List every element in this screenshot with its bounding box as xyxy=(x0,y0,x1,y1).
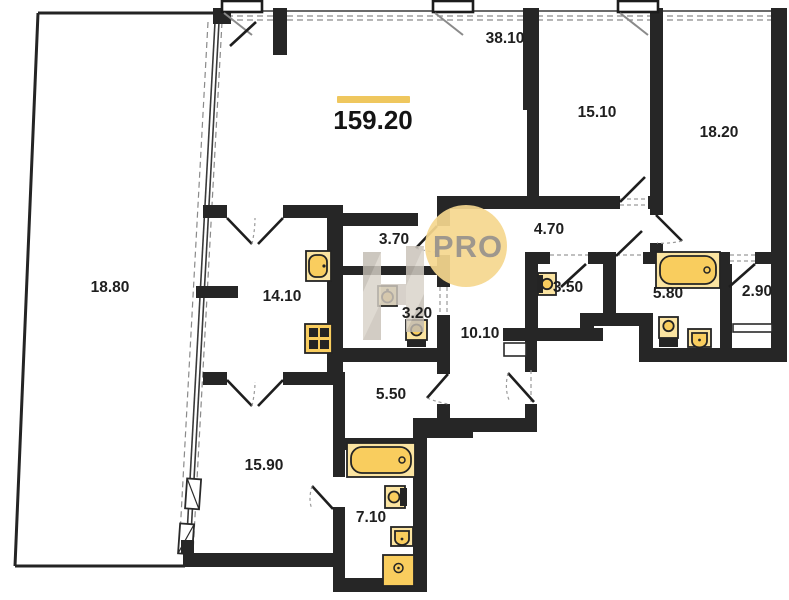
room-label-bedroom3: 15.90 xyxy=(245,457,284,474)
room-label-hallway: 10.10 xyxy=(461,325,500,342)
room-label-bedroom1: 15.10 xyxy=(578,104,617,121)
room-label-living: 38.10 xyxy=(486,30,525,47)
room-label-wc1: 3.20 xyxy=(402,305,432,322)
floor-plan: PRO 159.20 38.10 15.10 18.20 18.80 14.10… xyxy=(0,0,789,600)
room-label-corridor1: 3.70 xyxy=(379,231,409,248)
window-band xyxy=(217,11,779,20)
sink-icon xyxy=(391,527,413,546)
total-area-accent-bar xyxy=(337,96,410,103)
room-label-kitchen: 14.10 xyxy=(263,288,302,305)
room-label-bedroom2: 18.20 xyxy=(700,124,739,141)
bathtub-icon xyxy=(347,443,415,477)
room-label-corridor2: 4.70 xyxy=(534,221,564,238)
stove-icon xyxy=(305,324,332,353)
toilet-icon xyxy=(385,486,407,508)
room-label-bath1: 5.80 xyxy=(653,285,683,302)
sink-icon xyxy=(688,329,711,347)
storage-shelf xyxy=(733,324,772,332)
watermark-logo xyxy=(363,246,424,340)
shaft xyxy=(504,343,526,356)
floor-plan-drawing: PRO 159.20 38.10 15.10 18.20 18.80 14.10… xyxy=(0,0,789,600)
shower-icon xyxy=(383,555,414,586)
window-icon xyxy=(185,478,201,509)
room-label-wc2: 3.50 xyxy=(553,279,583,296)
watermark-text: PRO xyxy=(433,229,503,264)
toilet-icon xyxy=(659,317,678,347)
total-area-label: 159.20 xyxy=(333,105,413,135)
balcony-door-icon xyxy=(433,1,473,35)
kitchen-sink-icon xyxy=(306,251,331,281)
room-label-bath2: 7.10 xyxy=(356,509,386,526)
bathtub-icon xyxy=(656,252,720,288)
room-label-corridor3: 5.50 xyxy=(376,386,406,403)
room-label-storage: 2.90 xyxy=(742,283,772,300)
room-label-terrace: 18.80 xyxy=(91,279,130,296)
